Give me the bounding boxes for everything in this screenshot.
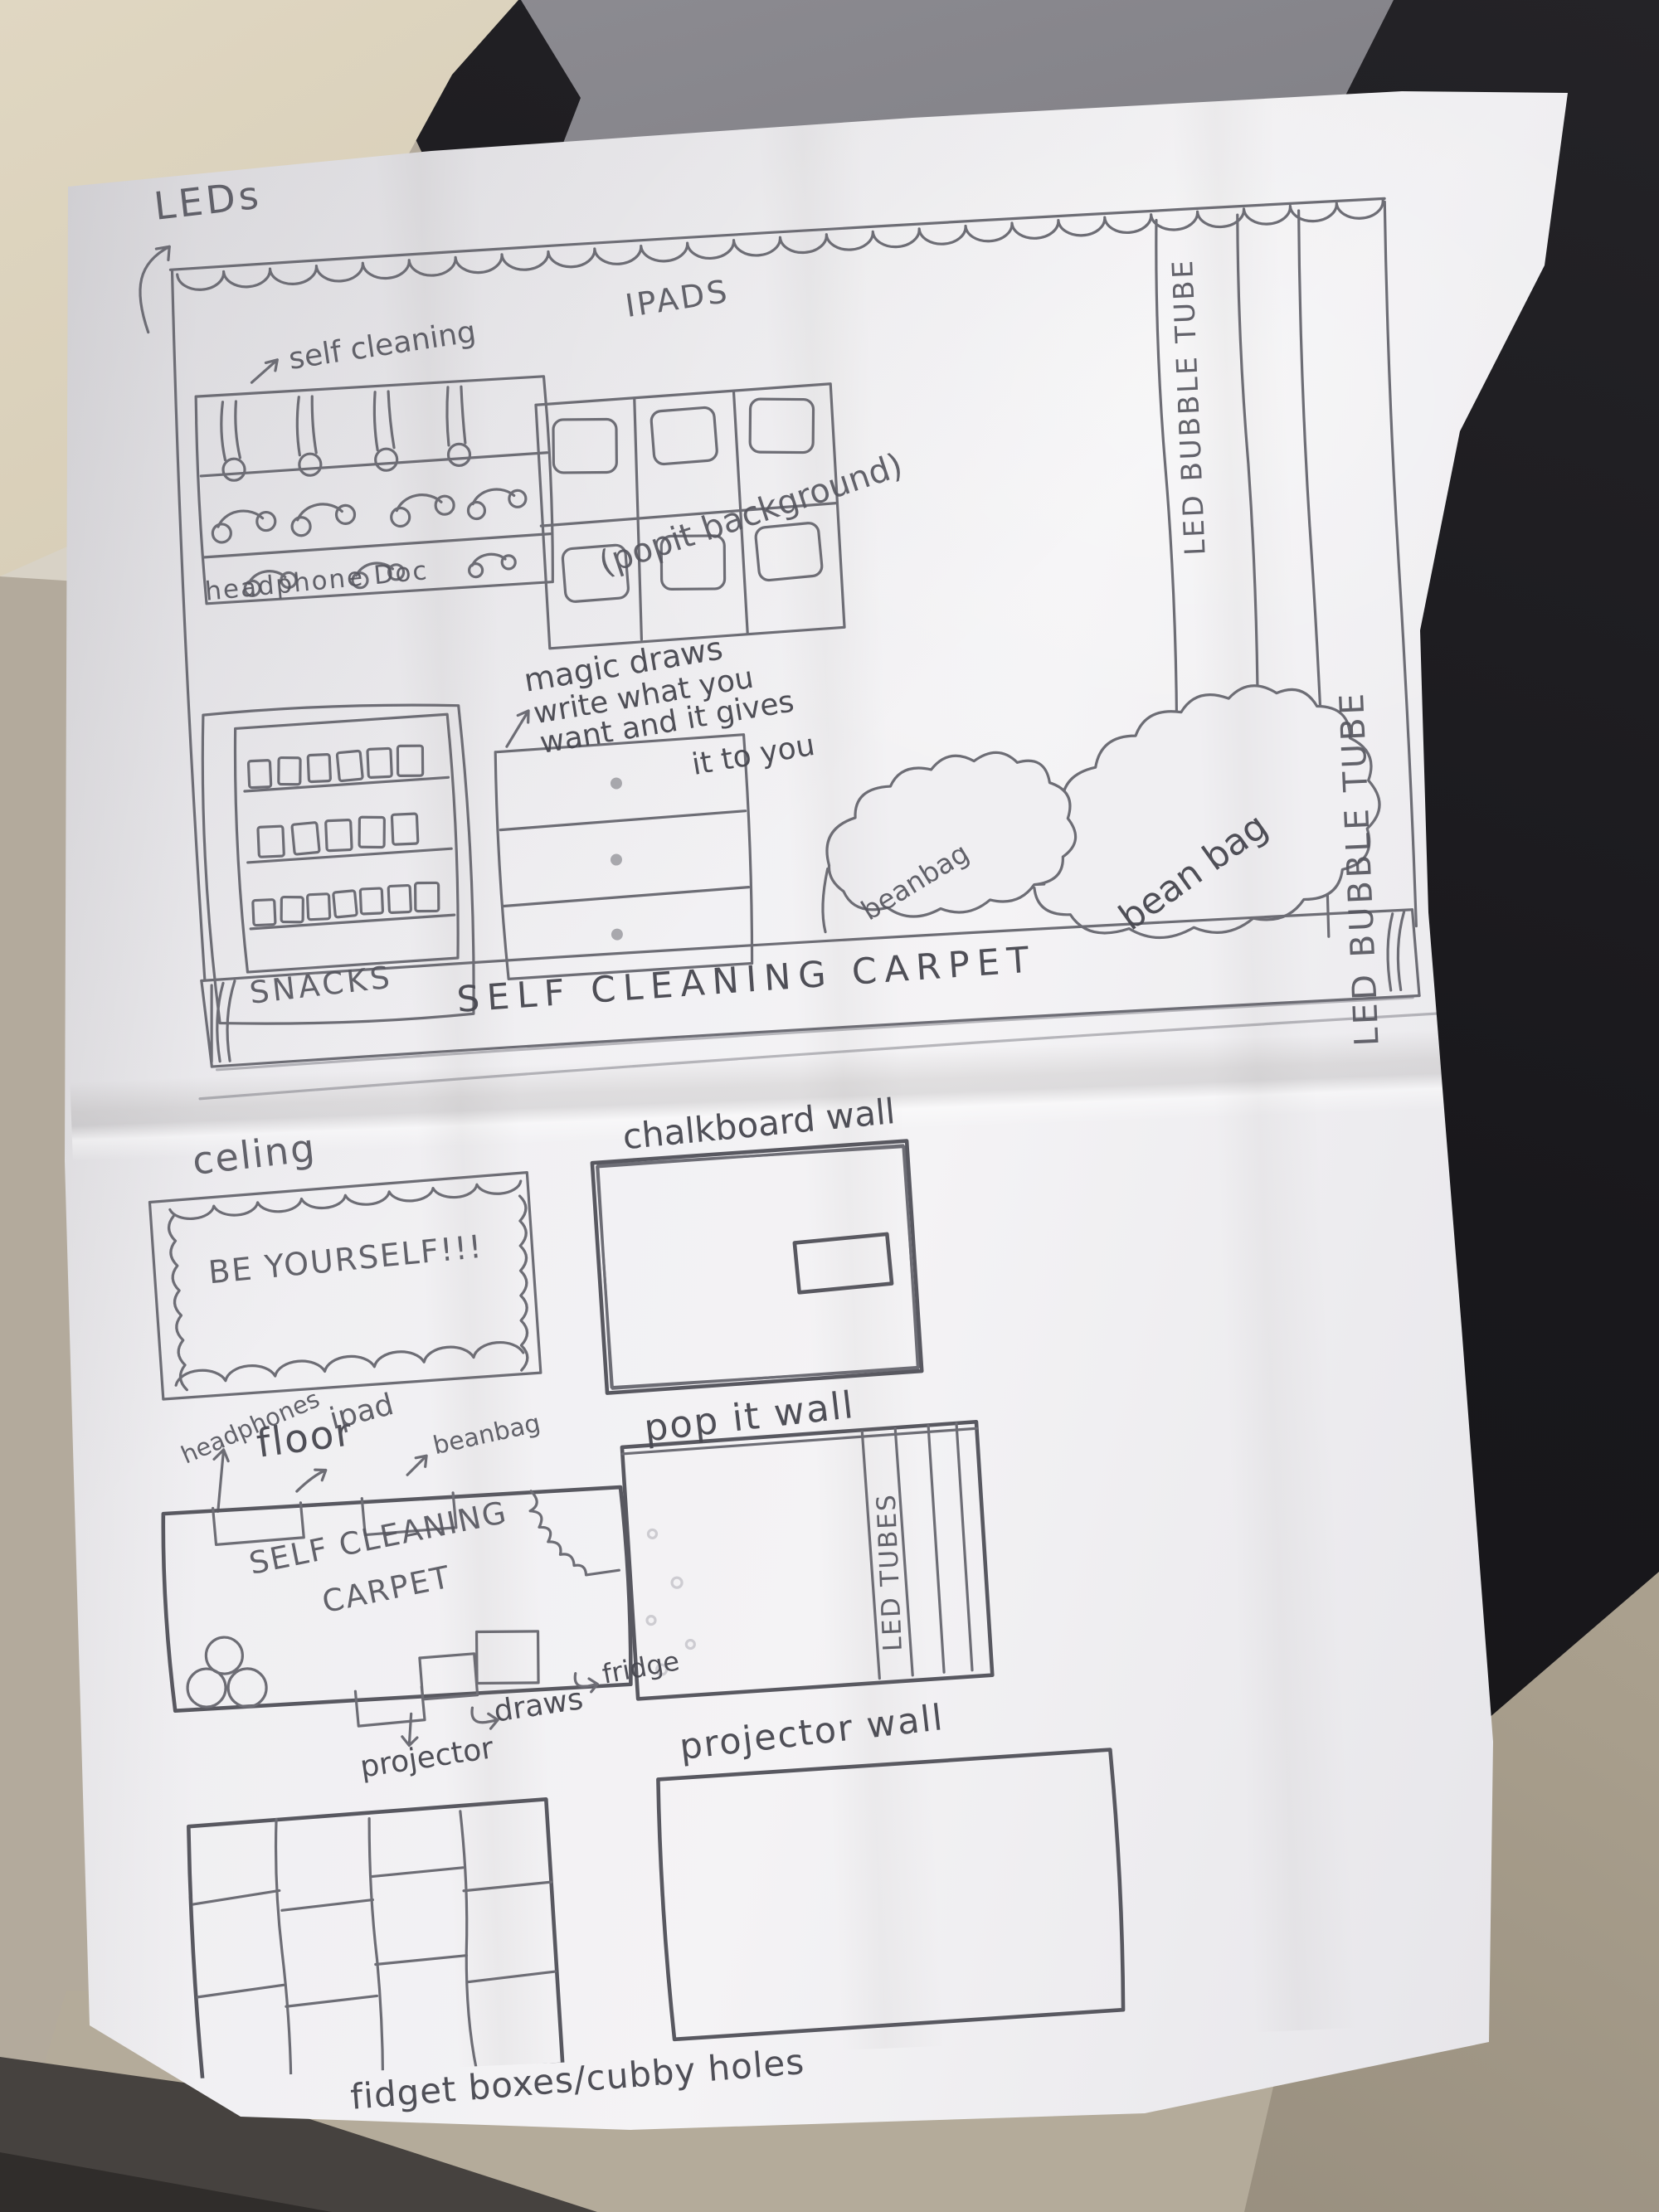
ceiling-label: celing <box>190 1125 319 1184</box>
popit-wall-label: pop it wall <box>642 1383 857 1451</box>
bubble-tube-2-drawing <box>1295 211 1331 936</box>
fridge-label: fridge <box>600 1645 682 1689</box>
snacks-label: SNACKS <box>248 959 395 1010</box>
sketch-content: LEDs self cleaning headphone Doc IPADS (… <box>79 85 1638 2079</box>
beanbag-label: beanbag <box>431 1409 543 1461</box>
carpet-band-drawing <box>194 907 1463 1098</box>
beanbag-big-label: bean bag <box>1112 805 1276 940</box>
sketch-linework <box>79 85 1638 2079</box>
ipads-label: IPADS <box>623 273 732 324</box>
beanbag-big-drawing <box>1019 680 1385 943</box>
magic-draws-line-4: it to you <box>689 728 817 782</box>
sketch-paper: LEDs self cleaning headphone Doc IPADS (… <box>0 0 1659 2212</box>
self-cleaning-label: self cleaning <box>286 315 478 377</box>
carpet-label: SELF CLEANING CARPET <box>455 939 1038 1021</box>
floorplan-text-1: SELF CLEANING <box>246 1495 511 1582</box>
ceiling-sign-text: BE YOURSELF!!! <box>207 1228 484 1291</box>
led-tubes-label: LED TUBES <box>872 1493 908 1652</box>
magic-draws-arrow-icon <box>505 711 530 746</box>
beanbag-arrow-icon <box>406 1456 427 1475</box>
floorplan-text-2: CARPET <box>319 1559 455 1620</box>
projector-wall-drawing <box>657 1749 1126 2039</box>
ipad-arrow-icon <box>296 1470 327 1492</box>
vending-machine-drawing <box>232 714 461 972</box>
leds-label: LEDs <box>152 172 264 228</box>
ipad-label: ipad <box>326 1388 397 1437</box>
beanbag-small-drawing <box>816 749 1079 931</box>
bubble-tube-2-label: LED BUBBLE TUBE <box>1333 689 1387 1047</box>
arrow-up-icon <box>214 1450 231 1512</box>
projector-wall-label: projector wall <box>678 1697 946 1768</box>
popit-note: (popit background) <box>595 446 907 583</box>
projector-label: projector <box>358 1731 496 1784</box>
beanbag-small-label: beanbag <box>855 837 975 927</box>
leds-arrow-icon <box>138 246 173 333</box>
cubby-grid-drawing <box>187 1799 563 2080</box>
draws-label: draws <box>492 1682 586 1729</box>
projector-arrow-icon <box>401 1714 418 1746</box>
bubble-tube-1-label: LED BUBBLE TUBE <box>1166 257 1213 556</box>
chalkboard-wall-label: chalkboard wall <box>621 1091 898 1157</box>
self-cleaning-arrow-icon <box>251 360 278 382</box>
ceiling-sign-drawing <box>149 1172 542 1399</box>
headphone-dock-label: headphone Doc <box>204 556 430 607</box>
led-garland <box>177 200 1385 290</box>
chalkboard-drawing <box>591 1140 922 1393</box>
